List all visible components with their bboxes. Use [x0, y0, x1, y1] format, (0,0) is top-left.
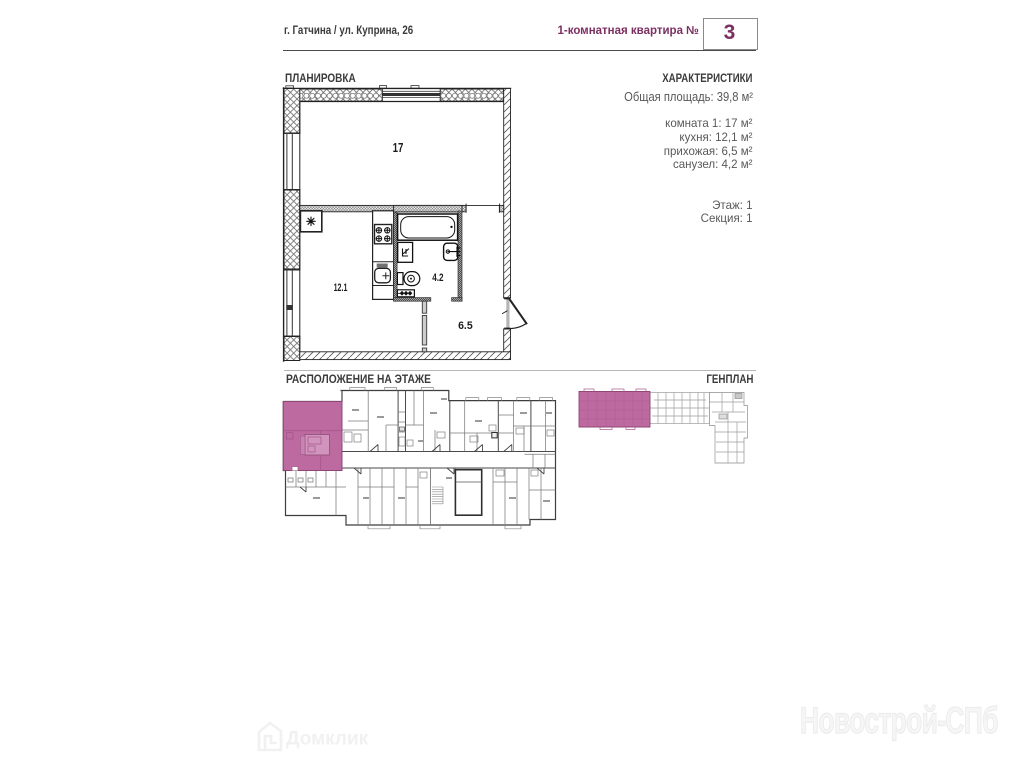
svg-text:12.1: 12.1 [334, 282, 348, 294]
svg-text:17: 17 [393, 140, 404, 155]
svg-text:Домклик: Домклик [286, 729, 369, 750]
svg-text:4.2: 4.2 [432, 272, 443, 284]
svg-text:6.5: 6.5 [458, 320, 473, 332]
